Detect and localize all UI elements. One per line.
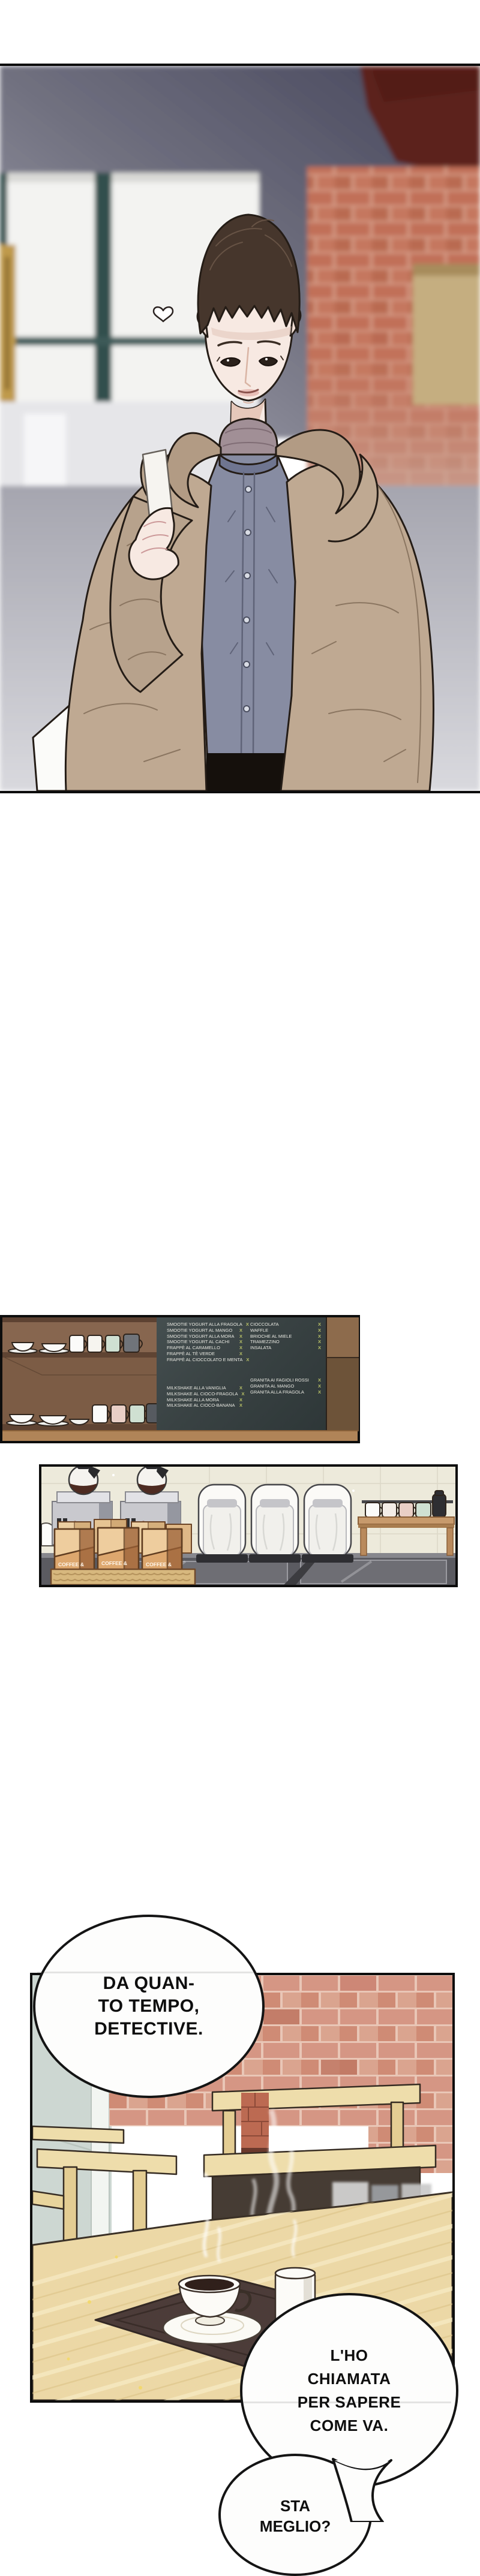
- menu-board: SMOOTIE YOGURT ALLA FRAGOLAX SMOOTIE YOG…: [157, 1317, 326, 1430]
- menu-item: MILKSHAKE ALLA VANIGLIAX: [167, 1385, 242, 1391]
- shelves-with-cups: [2, 1317, 159, 1430]
- coffee-station-art: COFFEE & COFFEE & COFFEE &: [41, 1467, 455, 1585]
- menu-item: WAFFLEX: [250, 1328, 321, 1334]
- menu-item: GRANITA AL MANGOX: [250, 1383, 321, 1389]
- bubble-text: MEGLIO?: [260, 2516, 331, 2536]
- bubble-text: CHIAMATA: [308, 2367, 391, 2391]
- bubble-text: L'HO: [330, 2344, 368, 2367]
- coffee-box-crate: COFFEE & COFFEE & COFFEE &: [51, 1519, 195, 1585]
- coffee-box-label: COFFEE &: [146, 1561, 172, 1567]
- menu-item: SMOOTIE YOGURT AL CACHIX: [167, 1339, 242, 1345]
- webtoon-page: { "page": {"width": 800, "height": 4206,…: [0, 0, 480, 2522]
- menu-item: GRANITA ALLA FRAGOLAX: [250, 1389, 321, 1395]
- bubble-text: COME VA.: [310, 2414, 389, 2437]
- speech-bubble-tail: [324, 2454, 402, 2522]
- wall-strip-top: [326, 1317, 359, 1357]
- street-portrait-art: [0, 66, 480, 791]
- menu-item: FRAPPÈ AL CARAMELLOX: [167, 1345, 242, 1351]
- panel-border-showthrough: [244, 2402, 451, 2403]
- coffee-box-label: COFFEE &: [101, 1560, 127, 1566]
- menu-item: SMOOTIE YOGURT ALLA FRAGOLAX: [167, 1322, 242, 1328]
- panel-coffee-station: COFFEE & COFFEE & COFFEE &: [39, 1464, 458, 1587]
- panel-border-showthrough: [37, 1972, 256, 1973]
- menu-item: INSALATAX: [250, 1345, 321, 1351]
- menu-item: TRAMEZZINOX: [250, 1339, 321, 1345]
- menu-item: SMOOTIE YOGURT ALLA MORAX: [167, 1334, 242, 1340]
- menu-item: MILKSHAKE AL CIOCO-FRAGOLAX: [167, 1391, 242, 1397]
- menu-column-left-bottom: MILKSHAKE ALLA VANIGLIAX MILKSHAKE AL CI…: [167, 1385, 242, 1409]
- bubble-text: DA QUAN-: [103, 1972, 195, 1995]
- coffee-box-label: COFFEE &: [58, 1561, 84, 1567]
- panel-street-portrait: [0, 64, 480, 793]
- speech-bubble-1: DA QUAN- TO TEMPO, DETECTIVE.: [33, 1915, 265, 2098]
- juice-dispensers: [196, 1485, 353, 1563]
- menu-item: FRAPPÈ AL TÈ VERDEX: [167, 1351, 242, 1357]
- menu-item: FRAPPÈ AL CIOCCOLATO E MENTAX: [167, 1357, 242, 1363]
- panel-menu-board: SMOOTIE YOGURT ALLA FRAGOLAX SMOOTIE YOG…: [0, 1315, 360, 1443]
- counter-bar: [2, 1430, 358, 1441]
- wall-strip-bottom: [326, 1357, 359, 1431]
- menu-column-right-top: CIOCCOLATAX WAFFLEX BRIOCHE AL MIELEX TR…: [250, 1322, 321, 1351]
- menu-item: MILKSHAKE ALLA MORAX: [167, 1397, 242, 1403]
- bubble-text: TO TEMPO,: [98, 1995, 200, 2018]
- menu-column-left-top: SMOOTIE YOGURT ALLA FRAGOLAX SMOOTIE YOG…: [167, 1322, 242, 1363]
- menu-item: SMOOTIE YOGURT AL MANGOX: [167, 1328, 242, 1334]
- menu-item: BRIOCHE AL MIELEX: [250, 1334, 321, 1340]
- menu-item: MILKSHAKE AL CIOCO-BANANAX: [167, 1403, 242, 1409]
- menu-item: CIOCCOLATAX: [250, 1322, 321, 1328]
- menu-column-right-bottom: GRANITA AI FAGIOLI ROSSIX GRANITA AL MAN…: [250, 1377, 321, 1395]
- menu-item: GRANITA AI FAGIOLI ROSSIX: [250, 1377, 321, 1383]
- bubble-text: DETECTIVE.: [94, 2018, 203, 2041]
- bubble-text: STA: [280, 2496, 310, 2516]
